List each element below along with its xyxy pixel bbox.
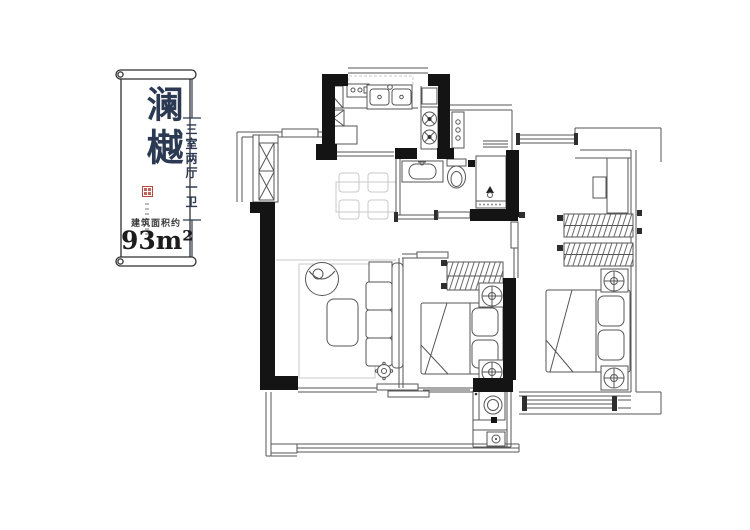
entry-door — [282, 129, 318, 137]
scroll-top-curl — [118, 72, 123, 77]
balcony-slider-door — [388, 391, 429, 397]
kitchen — [323, 76, 508, 156]
label-card: 澜樾 三室两厅一卫 建筑面积约 93m² — [112, 64, 212, 276]
floorplan-page: 澜樾 三室两厅一卫 建筑面积约 93m² — [0, 0, 750, 530]
armchair — [306, 263, 339, 296]
range-hood — [422, 88, 437, 104]
small-appliance — [347, 84, 369, 97]
scroll-bottom-roller — [116, 257, 196, 266]
dining-area — [276, 173, 396, 260]
area-value: 93m² — [121, 226, 191, 255]
shower — [476, 156, 506, 208]
living-room — [299, 262, 429, 397]
brand-seal-icon — [142, 186, 153, 197]
washing-machine — [473, 391, 505, 420]
entry-cabinet — [253, 135, 278, 202]
scroll-bottom-curl — [118, 259, 123, 264]
bathroom-door — [438, 212, 470, 218]
nightstand-lamp — [479, 283, 505, 307]
master-door — [511, 222, 518, 248]
dining-table — [336, 182, 396, 212]
dining-chair — [368, 200, 388, 219]
master-bedroom — [511, 212, 633, 390]
stove — [421, 88, 438, 149]
balcony-sink — [487, 432, 505, 446]
sofa — [366, 262, 403, 368]
kitchen-doorway — [337, 152, 394, 156]
fridge — [332, 126, 357, 144]
bedroom-2 — [399, 252, 505, 388]
dining-chair — [339, 200, 359, 219]
master-wardrobe — [519, 212, 633, 266]
entry — [253, 135, 278, 202]
master-bed — [546, 290, 630, 372]
toilet — [447, 159, 466, 188]
balcony — [473, 391, 505, 446]
scroll-top-roller — [116, 70, 196, 79]
bedroom2-door — [417, 252, 448, 258]
vanity-sink — [402, 161, 443, 182]
nightstand-lamp — [601, 366, 628, 390]
kitchen-sink — [367, 85, 412, 109]
hall-shelf — [452, 112, 508, 148]
coffee-table — [327, 299, 358, 346]
balcony-slider-door — [377, 384, 418, 390]
layout-description: 三室两厅一卫 — [186, 123, 200, 210]
nightstand-lamp — [601, 269, 628, 292]
